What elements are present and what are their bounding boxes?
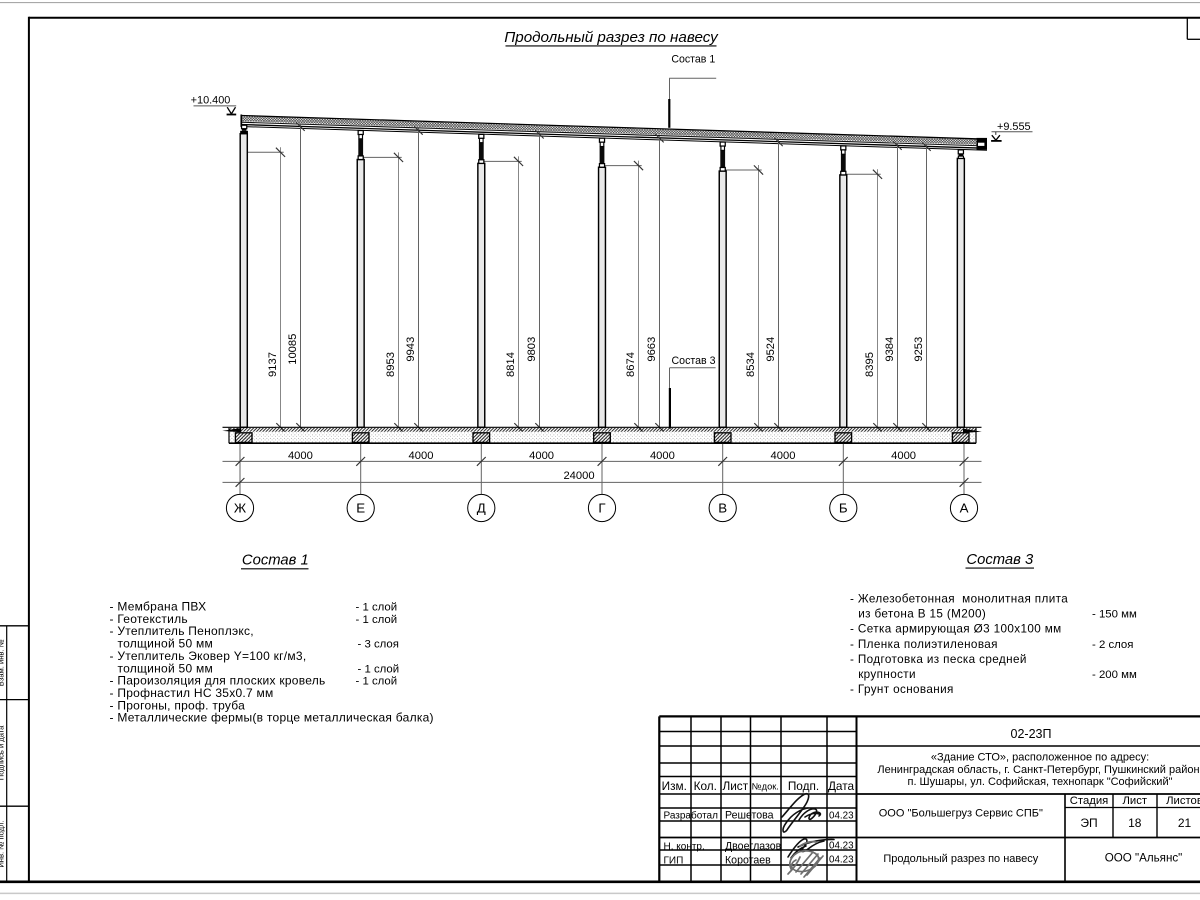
svg-text:Продольный разрез по навесу: Продольный разрез по навесу xyxy=(504,29,719,46)
svg-text:9137: 9137 xyxy=(267,352,279,377)
svg-text:9524: 9524 xyxy=(765,337,777,362)
svg-text:Подпись и дата: Подпись и дата xyxy=(0,725,5,780)
svg-text:- Железобетонная монолитная п: - Железобетонная монолитная плита xyxy=(850,593,1068,606)
svg-text:8534: 8534 xyxy=(745,352,757,377)
svg-text:Изм.: Изм. xyxy=(662,779,687,793)
svg-text:24000: 24000 xyxy=(563,470,594,482)
svg-text:- Сетка армирующая Ø3 100х100: - Сетка армирующая Ø3 100х100 мм xyxy=(850,623,1062,636)
svg-text:4000: 4000 xyxy=(529,450,554,462)
svg-text:ООО "Большегруз Сервис СПБ": ООО "Большегруз Сервис СПБ" xyxy=(879,808,1043,820)
svg-text:- 1 слой: - 1 слой xyxy=(358,663,400,675)
svg-text:18: 18 xyxy=(1128,816,1142,830)
svg-text:Н. контр.: Н. контр. xyxy=(664,841,705,852)
svg-text:Д: Д xyxy=(477,501,486,516)
svg-text:+10.400: +10.400 xyxy=(191,95,231,107)
svg-text:- Подготовка из песка средней: - Подготовка из песка средней xyxy=(850,653,1027,666)
svg-text:Лист: Лист xyxy=(1123,795,1148,807)
svg-text:Ленинградская область, г. Санк: Ленинградская область, г. Санкт-Петербур… xyxy=(877,764,1200,776)
svg-text:9253: 9253 xyxy=(913,337,925,362)
svg-text:- 3 слоя: - 3 слоя xyxy=(358,639,399,651)
svg-text:Состав 1: Состав 1 xyxy=(242,553,309,569)
svg-text:8674: 8674 xyxy=(625,352,637,377)
svg-text:9384: 9384 xyxy=(884,337,896,362)
svg-text:- Грунт основания: - Грунт основания xyxy=(850,683,954,696)
svg-text:8953: 8953 xyxy=(385,352,397,377)
svg-text:- Металлические фермы(в торце: - Металлические фермы(в торце металличес… xyxy=(110,711,434,725)
svg-text:ООО "Альянс": ООО "Альянс" xyxy=(1105,852,1183,865)
svg-text:из бетона В 15 (М200): из бетона В 15 (М200) xyxy=(858,608,986,621)
svg-text:9803: 9803 xyxy=(526,337,538,362)
svg-text:Двоеглазов: Двоеглазов xyxy=(725,840,782,852)
svg-text:Состав 3: Состав 3 xyxy=(966,552,1034,568)
svg-text:Инв. № подл.: Инв. № подл. xyxy=(0,820,5,867)
svg-text:А: А xyxy=(960,501,969,516)
svg-text:- 2 слоя: - 2 слоя xyxy=(1092,639,1133,651)
svg-text:- 1 слой: - 1 слой xyxy=(356,602,398,614)
svg-text:Листов: Листов xyxy=(1166,795,1200,807)
svg-text:- 200 мм: - 200 мм xyxy=(1092,669,1137,681)
svg-text:- 1 слой: - 1 слой xyxy=(356,614,398,626)
svg-text:8395: 8395 xyxy=(864,352,876,377)
svg-text:4000: 4000 xyxy=(650,450,675,462)
svg-text:4000: 4000 xyxy=(771,450,796,462)
svg-text:Разработал: Разработал xyxy=(664,810,719,822)
svg-text:9663: 9663 xyxy=(646,337,658,362)
svg-text:02-23П: 02-23П xyxy=(1011,727,1052,741)
svg-text:Ж: Ж xyxy=(234,501,247,516)
svg-text:10085: 10085 xyxy=(287,334,299,365)
svg-text:крупности: крупности xyxy=(858,668,916,681)
svg-text:04.23: 04.23 xyxy=(829,855,854,866)
svg-text:Состав 1: Состав 1 xyxy=(671,54,715,66)
svg-text:ГИП: ГИП xyxy=(664,855,684,866)
svg-text:Е: Е xyxy=(356,501,365,516)
svg-text:В: В xyxy=(718,501,727,516)
svg-text:Решетова: Решетова xyxy=(725,810,774,822)
svg-text:Г: Г xyxy=(598,501,605,516)
svg-text:Коротаев: Коротаев xyxy=(725,854,771,866)
svg-text:Кол.: Кол. xyxy=(694,779,717,793)
svg-text:4000: 4000 xyxy=(288,450,313,462)
svg-text:04.23: 04.23 xyxy=(829,811,854,822)
svg-text:Состав 3: Состав 3 xyxy=(672,355,716,367)
svg-text:- Пленка полиэтиленовая: - Пленка полиэтиленовая xyxy=(850,638,998,651)
svg-text:ЭП: ЭП xyxy=(1080,816,1097,830)
svg-text:Дата: Дата xyxy=(828,779,855,793)
svg-text:4000: 4000 xyxy=(891,450,916,462)
svg-text:Продольный разрез по навесу: Продольный разрез по навесу xyxy=(883,853,1038,865)
svg-text:Подп.: Подп. xyxy=(788,779,819,793)
svg-text:4000: 4000 xyxy=(409,450,434,462)
svg-text:9943: 9943 xyxy=(405,337,417,362)
svg-text:Стадия: Стадия xyxy=(1070,795,1109,807)
svg-text:п. Шушары, ул. Софийская, техн: п. Шушары, ул. Софийская, технопарк "Соф… xyxy=(907,776,1172,788)
svg-text:- 150 мм: - 150 мм xyxy=(1092,609,1137,621)
svg-text:21: 21 xyxy=(1178,816,1192,830)
svg-text:8814: 8814 xyxy=(505,352,517,377)
svg-text:- 1 слой: - 1 слой xyxy=(356,676,398,688)
svg-text:Лист: Лист xyxy=(722,779,748,793)
svg-text:Взам. инв. №: Взам. инв. № xyxy=(0,639,5,686)
svg-text:№док.: №док. xyxy=(752,781,779,791)
svg-text:04.23: 04.23 xyxy=(829,841,854,852)
svg-text:«Здание СТО», расположенное по: «Здание СТО», расположенное по адресу: xyxy=(931,751,1149,763)
svg-text:Б: Б xyxy=(839,501,848,516)
